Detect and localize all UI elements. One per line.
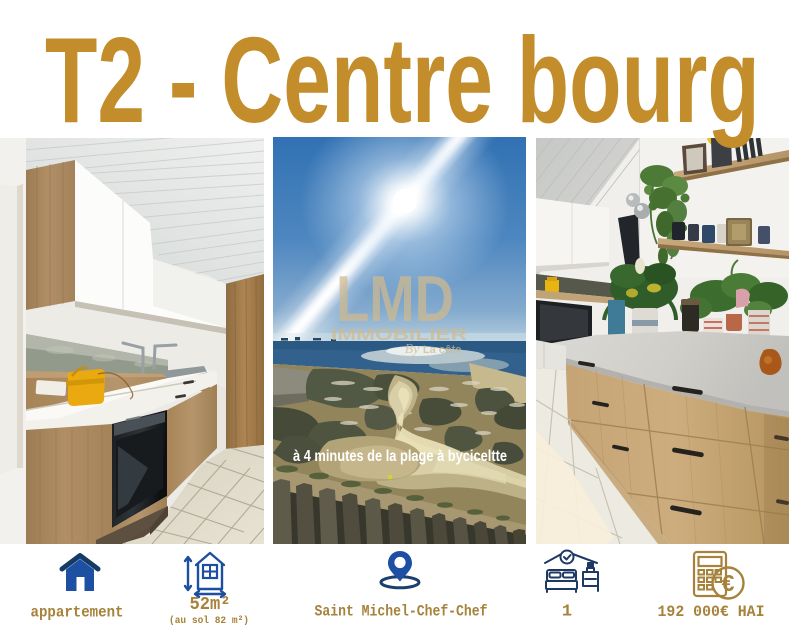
svg-text:à 4 minutes de la plage à byci: à 4 minutes de la plage à byciceltte bbox=[293, 448, 507, 465]
svg-text:appartement: appartement bbox=[31, 604, 124, 622]
svg-text:By La côte: By La côte bbox=[405, 342, 462, 357]
svg-text:(au sol 82 m²): (au sol 82 m²) bbox=[169, 615, 249, 627]
svg-text:€: € bbox=[722, 570, 735, 596]
svg-text:192 000€ HAI: 192 000€ HAI bbox=[658, 603, 765, 621]
svg-text:52m²: 52m² bbox=[190, 594, 231, 615]
svg-text:1: 1 bbox=[562, 603, 572, 622]
svg-text:Saint Michel-Chef-Chef: Saint Michel-Chef-Chef bbox=[315, 603, 488, 621]
svg-text:LMD: LMD bbox=[336, 262, 454, 335]
svg-text:IMMOBILIER: IMMOBILIER bbox=[331, 326, 467, 344]
